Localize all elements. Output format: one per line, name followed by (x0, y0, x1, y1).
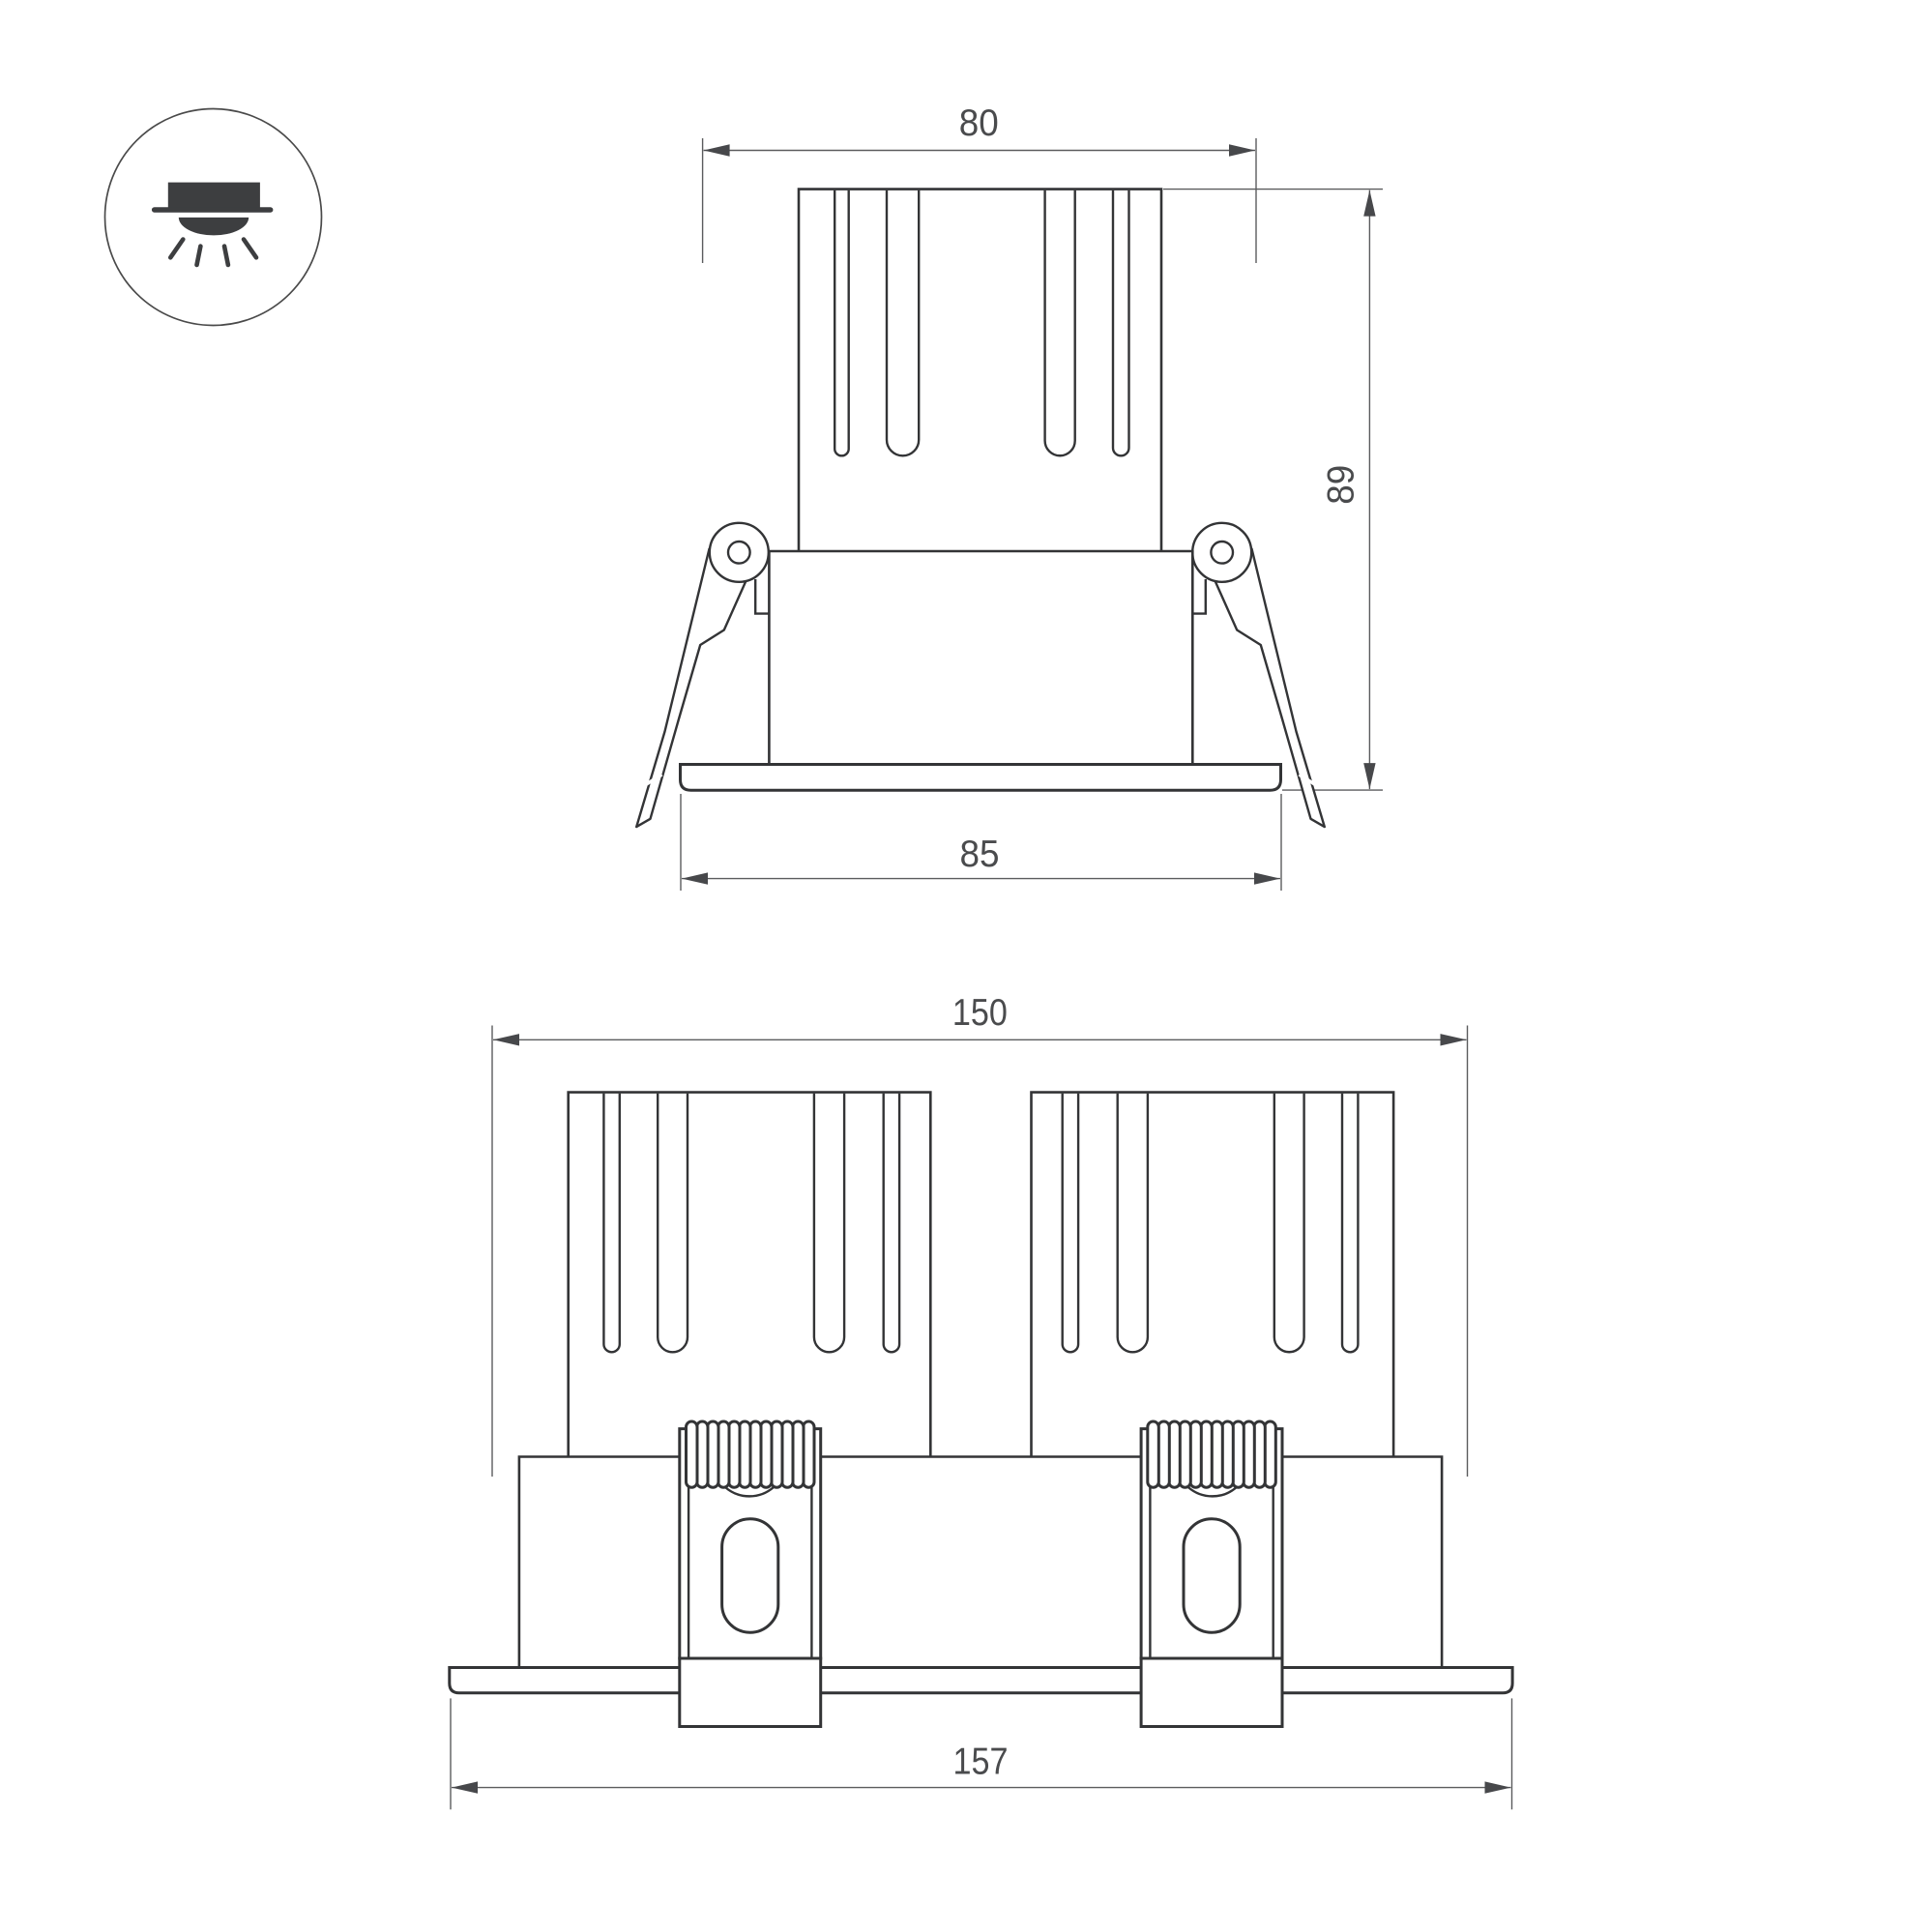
svg-text:80: 80 (959, 102, 999, 144)
svg-text:157: 157 (953, 1742, 1009, 1783)
svg-text:150: 150 (952, 992, 1008, 1034)
svg-text:89: 89 (1321, 465, 1362, 505)
svg-text:85: 85 (960, 834, 1000, 875)
